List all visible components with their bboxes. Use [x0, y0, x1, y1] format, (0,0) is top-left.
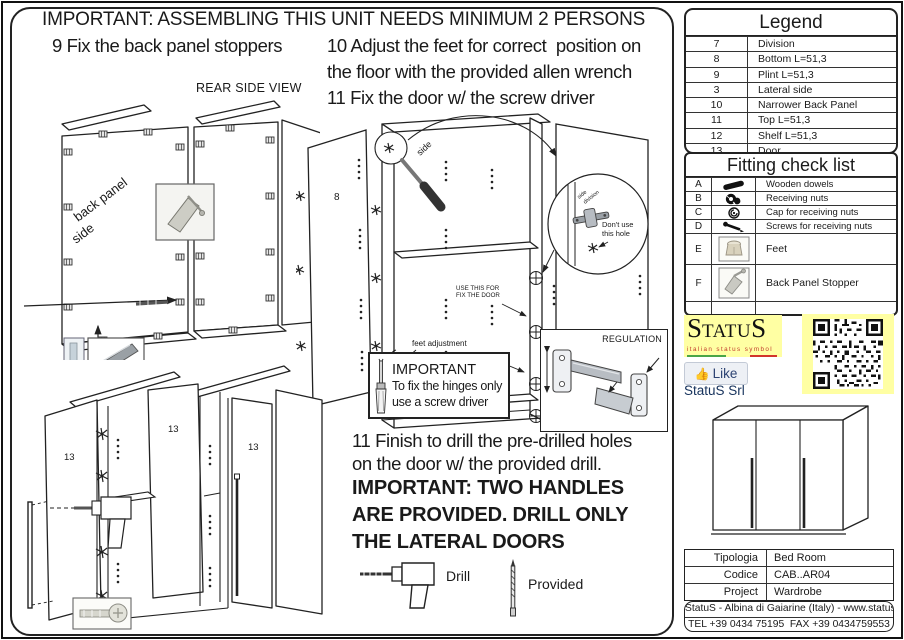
- footer-address: StatuS - Albina di Gaiarine (Italy) - ww…: [685, 602, 893, 618]
- logo-letter-first: S: [687, 313, 702, 343]
- stopper-photo-inset: [156, 184, 214, 240]
- drill-bit-icon: [506, 558, 520, 618]
- info-label: Project: [685, 584, 767, 600]
- fitting-desc: Screws for receiving nuts: [756, 221, 896, 232]
- fitting-desc: Feet: [756, 243, 896, 255]
- company-name: StatuS Srl: [684, 383, 745, 398]
- legend-row: 9Plint L=51,3: [686, 67, 896, 82]
- finish-bold2: ARE PROVIDED. DRILL ONLY: [352, 504, 628, 527]
- fitting-desc: Receiving nuts: [756, 193, 896, 204]
- legend-title: Legend: [686, 10, 896, 36]
- important-box-line2: use a screw driver: [392, 395, 502, 411]
- legend-desc: Bottom L=51,3: [748, 52, 896, 66]
- provided-label: Provided: [528, 576, 583, 592]
- finish-line2: on the door w/ the provided drill.: [352, 453, 602, 475]
- legend-desc: Lateral side: [748, 83, 896, 97]
- screw-photo-inset: [73, 598, 131, 629]
- step9-heading: 9 Fix the back panel stoppers: [52, 35, 282, 57]
- fitting-letter: F: [686, 265, 712, 301]
- step10-heading-line2: the floor with the provided allen wrench: [327, 61, 632, 83]
- legend-num: 12: [686, 129, 748, 143]
- screwdriver-icon: [370, 357, 392, 415]
- fitting-row: F Back Panel Stopper: [686, 264, 896, 301]
- qr-code-pattern: [813, 319, 883, 389]
- receiving-nut-icon: [717, 193, 751, 205]
- fitting-row: C Cap for receiving nuts: [686, 205, 896, 219]
- legend-num: 8: [686, 52, 748, 66]
- drill-label: Drill: [446, 568, 470, 584]
- legend-num: 7: [686, 37, 748, 51]
- use-this-label-line2: FIX THE DOOR: [456, 292, 500, 299]
- logo-letter-last: S: [751, 313, 766, 343]
- facebook-like-badge: 👍 Like: [684, 362, 748, 385]
- step10-heading-line1: 10 Adjust the feet for correct position …: [327, 35, 641, 57]
- legend-desc: Division: [748, 37, 896, 51]
- legend-desc: Plint L=51,3: [748, 68, 896, 82]
- assembly-instruction-sheet: IMPORTANT: ASSEMBLING THIS UNIT NEEDS MI…: [0, 0, 904, 640]
- legend-row: 11Top L=51,3: [686, 112, 896, 127]
- right-door-13-label: 13: [248, 442, 259, 453]
- legend-num: 11: [686, 113, 748, 127]
- important-box-title: IMPORTANT: [392, 361, 502, 379]
- door-drilling-diagram: 13 13 13: [22, 356, 344, 634]
- legend-num: 10: [686, 98, 748, 112]
- fitting-check-list: Fitting check list A Wooden dowels B Rec…: [684, 152, 898, 316]
- info-value: Wardrobe: [767, 584, 893, 600]
- product-info-table: Tipologia Bed Room Codice CAB..AR04 Proj…: [684, 549, 894, 601]
- legend-row: 7Division: [686, 36, 896, 51]
- fitting-desc: Back Panel Stopper: [756, 277, 896, 289]
- finish-bold1: IMPORTANT: TWO HANDLES: [352, 477, 624, 500]
- important-note-box: IMPORTANT To fix the hinges only use a s…: [368, 352, 510, 419]
- qr-code: [802, 314, 894, 394]
- fitting-desc: Cap for receiving nuts: [756, 207, 896, 218]
- fitting-row: B Receiving nuts: [686, 191, 896, 205]
- logo-tagline: italian status symbol: [687, 346, 779, 353]
- screw-icon: [717, 221, 751, 233]
- legend-row: 3Lateral side: [686, 82, 896, 97]
- thumbs-up-icon: 👍: [695, 368, 710, 380]
- info-label: Tipologia: [685, 550, 767, 566]
- dont-use-label-line2: this hole: [602, 229, 630, 238]
- hinge-detail-inset: side division Don't use this hole: [548, 174, 648, 274]
- panel-8-label: 8: [334, 192, 340, 203]
- legend-num: 9: [686, 68, 748, 82]
- legend-desc: Shelf L=51,3: [748, 129, 896, 143]
- wardrobe-thumbnail: [698, 400, 888, 546]
- fitting-letter: B: [686, 192, 712, 205]
- fitting-letter: E: [686, 234, 712, 264]
- legend-row: 8Bottom L=51,3: [686, 51, 896, 66]
- legend-row: 10Narrower Back Panel: [686, 97, 896, 112]
- info-row: Codice CAB..AR04: [685, 566, 893, 583]
- fitting-letter: D: [686, 220, 712, 233]
- info-value: CAB..AR04: [767, 567, 893, 583]
- finish-bold3: THE LATERAL DOORS: [352, 531, 565, 554]
- fitting-letter: A: [686, 178, 712, 191]
- left-door-13-label: 13: [64, 452, 75, 463]
- finish-line1: 11 Finish to drill the pre-drilled holes: [352, 430, 632, 452]
- cap-icon: [717, 207, 751, 219]
- side-label: side: [415, 139, 434, 157]
- important-box-line1: To fix the hinges only: [392, 379, 502, 395]
- use-this-label-line1: USE THIS FOR: [456, 285, 500, 292]
- footer-contact-box: StatuS - Albina di Gaiarine (Italy) - ww…: [684, 601, 894, 632]
- dont-use-label-line1: Don't use: [602, 220, 633, 229]
- status-logo: STATUS italian status symbol: [684, 315, 782, 357]
- italian-flag-bars: [687, 355, 779, 358]
- fitting-row: D Screws for receiving nuts: [686, 219, 896, 233]
- legend-table: Legend 7Division 8Bottom L=51,3 9Plint L…: [684, 8, 898, 154]
- info-label: Codice: [685, 567, 767, 583]
- wooden-dowel-icon: [717, 179, 751, 191]
- info-row: Tipologia Bed Room: [685, 550, 893, 566]
- regulation-box: REGULATION: [540, 329, 668, 432]
- legend-desc: Narrower Back Panel: [748, 98, 896, 112]
- logo-letters-mid: TATU: [702, 321, 751, 342]
- fitting-desc: Wooden dowels: [756, 179, 896, 190]
- footer-phone: TEL +39 0434 75195 FAX +39 0434759553: [685, 618, 893, 633]
- fitting-row: A Wooden dowels: [686, 177, 896, 191]
- center-door-13-label: 13: [168, 424, 179, 435]
- feet-adjustment-label: feet adjustment: [412, 339, 467, 348]
- legend-row: 12Shelf L=51,3: [686, 128, 896, 143]
- drill-icon: [358, 558, 444, 610]
- back-panel-stopper-photo-icon: [718, 267, 750, 299]
- regulation-label: REGULATION: [602, 334, 662, 344]
- like-label: Like: [713, 366, 738, 381]
- fitting-letter: C: [686, 206, 712, 219]
- info-value: Bed Room: [767, 550, 893, 566]
- screwdriver-icon: [402, 160, 441, 207]
- feet-photo-icon: [718, 236, 750, 262]
- fitting-title: Fitting check list: [686, 154, 896, 177]
- info-row: Project Wardrobe: [685, 583, 893, 600]
- legend-num: 3: [686, 83, 748, 97]
- sheet-title: IMPORTANT: ASSEMBLING THIS UNIT NEEDS MI…: [42, 9, 645, 31]
- legend-desc: Top L=51,3: [748, 113, 896, 127]
- hinge-regulation-diagram: [541, 330, 665, 428]
- fitting-row: E Feet: [686, 233, 896, 264]
- rear-side-view-diagram: back panel side: [18, 92, 320, 360]
